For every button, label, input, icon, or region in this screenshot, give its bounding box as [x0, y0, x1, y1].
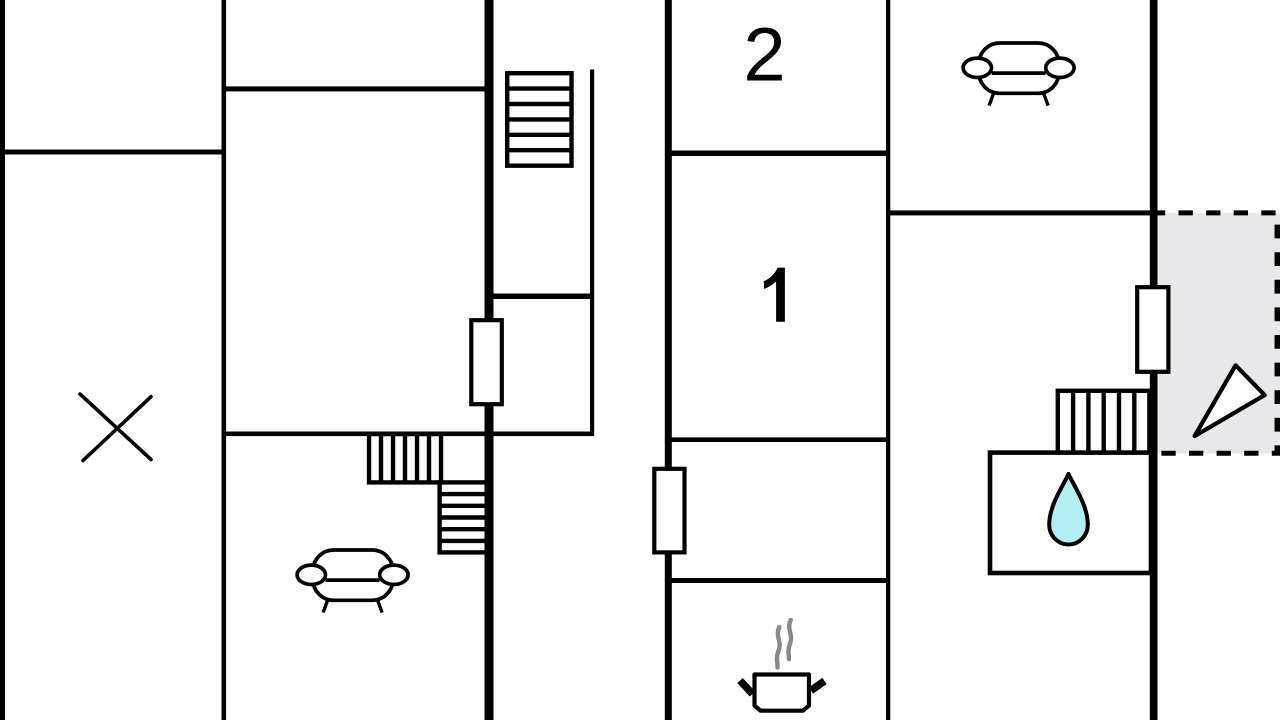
svg-text:2: 2: [743, 12, 785, 97]
